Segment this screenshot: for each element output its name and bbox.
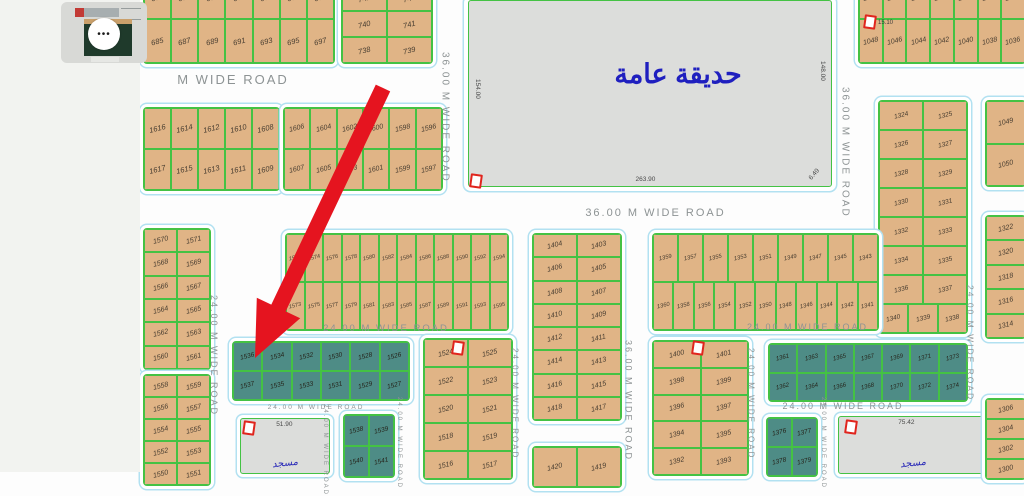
parcel-number: 1342 bbox=[840, 302, 854, 311]
parcel-1334[interactable]: 1334 bbox=[879, 246, 923, 275]
parcel-number: 1572 bbox=[289, 254, 302, 263]
parcel-number: 1041 bbox=[934, 0, 951, 2]
parcel-row: 15641565 bbox=[144, 299, 210, 322]
parcel-1394[interactable]: 1394 bbox=[653, 421, 701, 448]
parcel-1360[interactable]: 1360 bbox=[653, 282, 673, 330]
parcel-685[interactable]: 685 bbox=[144, 19, 171, 63]
parcel-number: 1593 bbox=[474, 302, 487, 311]
parcel-number: 1409 bbox=[591, 310, 608, 321]
parcel-1401[interactable]: 1401 bbox=[701, 341, 749, 368]
parcel-number: 1551 bbox=[185, 469, 202, 480]
parcel-696[interactable]: 696 bbox=[307, 0, 334, 19]
parcel-number: 1392 bbox=[668, 456, 685, 467]
parcel-1361[interactable]: 1361 bbox=[769, 344, 797, 373]
map-canvas[interactable]: حديقة عامة 154.00 148.00 263.90 6.49 51.… bbox=[0, 0, 1024, 472]
parcel-number: 1377 bbox=[797, 427, 813, 437]
parcel-number: 1354 bbox=[718, 302, 732, 311]
parcel-1393[interactable]: 1393 bbox=[701, 448, 749, 475]
parcel-1411[interactable]: 1411 bbox=[577, 327, 621, 350]
parcel-number: 1587 bbox=[418, 302, 431, 311]
parcel-1550[interactable]: 1550 bbox=[144, 463, 177, 485]
parcel-1316[interactable]: 1316 bbox=[986, 289, 1024, 313]
parcel-1566[interactable]: 1566 bbox=[144, 276, 177, 299]
parcel-1537[interactable]: 1537 bbox=[233, 371, 262, 400]
parcel-1044[interactable]: 1044 bbox=[906, 19, 930, 63]
parcel-number: 1322 bbox=[997, 223, 1014, 234]
parcel-1410[interactable]: 1410 bbox=[533, 304, 577, 327]
parcel-1571[interactable]: 1571 bbox=[177, 229, 210, 252]
parcel-1040[interactable]: 1040 bbox=[954, 19, 978, 63]
parcel-687[interactable]: 687 bbox=[171, 19, 198, 63]
parcel-1359[interactable]: 1359 bbox=[653, 234, 678, 282]
parcel-1552[interactable]: 1552 bbox=[144, 441, 177, 463]
parcel-number: 1614 bbox=[175, 122, 193, 135]
parcel-1615[interactable]: 1615 bbox=[171, 149, 198, 190]
parcel-number: 1348 bbox=[779, 302, 793, 311]
parcel-695[interactable]: 695 bbox=[280, 19, 307, 63]
parcel-1340[interactable]: 1340 bbox=[879, 304, 908, 333]
parcel-number: 1556 bbox=[152, 403, 169, 414]
red-marker-4 bbox=[242, 420, 256, 436]
parcel-row: 13941395 bbox=[653, 421, 748, 448]
more-options-button[interactable]: ••• bbox=[88, 18, 120, 50]
parcel-689[interactable]: 689 bbox=[198, 19, 225, 63]
parcel-1616[interactable]: 1616 bbox=[144, 108, 171, 149]
parcel-number: 1372 bbox=[917, 382, 931, 391]
parcel-1347[interactable]: 1347 bbox=[803, 234, 828, 282]
parcel-row: 1314 bbox=[986, 314, 1024, 338]
parcel-1553[interactable]: 1553 bbox=[177, 441, 210, 463]
parcel-1339[interactable]: 1339 bbox=[908, 304, 937, 333]
parcel-number: 1048 bbox=[862, 36, 879, 47]
parcel-1377[interactable]: 1377 bbox=[792, 418, 817, 447]
parcel-1405[interactable]: 1405 bbox=[577, 257, 621, 280]
parcel-1304[interactable]: 1304 bbox=[986, 419, 1024, 439]
parcel-1518[interactable]: 1518 bbox=[424, 423, 468, 451]
parcel-number: 696 bbox=[313, 0, 327, 3]
parcel-number: 1586 bbox=[418, 254, 431, 263]
parcel-1529[interactable]: 1529 bbox=[350, 371, 379, 400]
parcel-1396[interactable]: 1396 bbox=[653, 395, 701, 422]
road-label-12: 36.00 M WIDE ROAD bbox=[622, 330, 635, 472]
parcel-number: 1035 bbox=[1005, 0, 1022, 2]
parcel-1338[interactable]: 1338 bbox=[938, 304, 967, 333]
parcel-1594[interactable]: 1594 bbox=[490, 234, 509, 282]
parcel-1613[interactable]: 1613 bbox=[198, 149, 225, 190]
parcel-1517[interactable]: 1517 bbox=[468, 451, 512, 479]
parcel-1570[interactable]: 1570 bbox=[144, 229, 177, 252]
parcel-1337[interactable]: 1337 bbox=[923, 275, 967, 304]
parcel-number: 1574 bbox=[307, 254, 320, 263]
parcel-1520[interactable]: 1520 bbox=[424, 395, 468, 423]
parcel-1408[interactable]: 1408 bbox=[533, 281, 577, 304]
parcel-1562[interactable]: 1562 bbox=[144, 322, 177, 345]
parcel-1326[interactable]: 1326 bbox=[879, 130, 923, 159]
parcel-1371[interactable]: 1371 bbox=[910, 344, 938, 373]
parcel-1530[interactable]: 1530 bbox=[321, 342, 350, 371]
parcel-1592[interactable]: 1592 bbox=[471, 234, 490, 282]
parcel-1608[interactable]: 1608 bbox=[252, 108, 279, 149]
parcel-1320[interactable]: 1320 bbox=[986, 240, 1024, 264]
parcel-1372[interactable]: 1372 bbox=[910, 373, 938, 402]
parcel-1370[interactable]: 1370 bbox=[882, 373, 910, 402]
parcel-1523[interactable]: 1523 bbox=[468, 367, 512, 395]
parcel-number: 1379 bbox=[797, 456, 813, 466]
parcel-1335[interactable]: 1335 bbox=[923, 246, 967, 275]
parcel-1540[interactable]: 1540 bbox=[344, 446, 369, 477]
parcel-1399[interactable]: 1399 bbox=[701, 368, 749, 395]
parcel-1395[interactable]: 1395 bbox=[701, 421, 749, 448]
parcel-row: 15561557 bbox=[144, 397, 210, 419]
parcel-number: 1334 bbox=[893, 255, 909, 265]
parcel-number: 1600 bbox=[368, 123, 385, 134]
parcel-1362[interactable]: 1362 bbox=[769, 373, 797, 402]
parcel-number: 1526 bbox=[386, 351, 402, 361]
parcel-number: 1362 bbox=[776, 382, 790, 391]
parcel-number: 1343 bbox=[859, 254, 873, 263]
parcel-number: 1329 bbox=[937, 168, 953, 178]
parcel-number: 1601 bbox=[368, 164, 385, 175]
parcel-number: 1531 bbox=[328, 380, 344, 390]
road-label-4: 24.00 M WIDE ROAD bbox=[207, 238, 221, 473]
parcel-1535[interactable]: 1535 bbox=[262, 371, 291, 400]
parcel-1353[interactable]: 1353 bbox=[728, 234, 753, 282]
parcel-1351[interactable]: 1351 bbox=[753, 234, 778, 282]
parcel-row: 13321333 bbox=[879, 217, 967, 246]
parcel-1584[interactable]: 1584 bbox=[397, 234, 416, 282]
public-park-parcel[interactable]: حديقة عامة 154.00 148.00 263.90 6.49 bbox=[468, 0, 832, 187]
parcel-number: 1394 bbox=[668, 430, 685, 441]
parcel-1559[interactable]: 1559 bbox=[177, 375, 210, 397]
parcel-block-1538-1541: 1538153915401541 bbox=[343, 414, 395, 478]
parcel-1398[interactable]: 1398 bbox=[653, 368, 701, 395]
parcel-1541[interactable]: 1541 bbox=[369, 446, 394, 477]
parcel-1412[interactable]: 1412 bbox=[533, 327, 577, 350]
parcel-1609[interactable]: 1609 bbox=[252, 149, 279, 190]
parcel-1356[interactable]: 1356 bbox=[694, 282, 714, 330]
parcel-number: 1376 bbox=[772, 427, 788, 437]
parcel-number: 1373 bbox=[946, 354, 960, 363]
parcel-1617[interactable]: 1617 bbox=[144, 149, 171, 190]
parcel-1327[interactable]: 1327 bbox=[923, 130, 967, 159]
parcel-1050[interactable]: 1050 bbox=[986, 144, 1024, 187]
parcel-1329[interactable]: 1329 bbox=[923, 159, 967, 188]
parcel-1036[interactable]: 1036 bbox=[1001, 19, 1024, 63]
parcel-1567[interactable]: 1567 bbox=[177, 276, 210, 299]
parcel-number: 1393 bbox=[716, 456, 733, 467]
parcel-number: 693 bbox=[259, 35, 273, 47]
parcel-1556[interactable]: 1556 bbox=[144, 397, 177, 419]
parcel-number: 695 bbox=[286, 35, 300, 47]
parcel-1614[interactable]: 1614 bbox=[171, 108, 198, 149]
parcel-1403[interactable]: 1403 bbox=[577, 234, 621, 257]
parcel-1606[interactable]: 1606 bbox=[284, 108, 310, 149]
parcel-1573[interactable]: 1573 bbox=[286, 282, 305, 330]
parcel-1354[interactable]: 1354 bbox=[714, 282, 734, 330]
parcel-1407[interactable]: 1407 bbox=[577, 281, 621, 304]
parcel-block-1419-1420: 14201419 bbox=[532, 446, 622, 488]
parcel-block-1049-1050: 10491050 bbox=[985, 100, 1024, 187]
parcel-1324[interactable]: 1324 bbox=[879, 101, 923, 130]
parcel-number: 1408 bbox=[547, 287, 564, 298]
parcel-number: 1575 bbox=[307, 302, 320, 311]
parcel-row: 1362136413661368137013721374 bbox=[769, 373, 967, 402]
parcel-number: 1324 bbox=[893, 110, 909, 120]
parcel-1416[interactable]: 1416 bbox=[533, 374, 577, 397]
parcel-1557[interactable]: 1557 bbox=[177, 397, 210, 419]
parcel-1607[interactable]: 1607 bbox=[284, 149, 310, 190]
parcel-1409[interactable]: 1409 bbox=[577, 304, 621, 327]
parcel-1365[interactable]: 1365 bbox=[826, 344, 854, 373]
parcel-number: 1411 bbox=[591, 333, 607, 343]
parcel-1333[interactable]: 1333 bbox=[923, 217, 967, 246]
parcel-1555[interactable]: 1555 bbox=[177, 419, 210, 441]
parcel-1605[interactable]: 1605 bbox=[310, 149, 336, 190]
parcel-1392[interactable]: 1392 bbox=[653, 448, 701, 475]
parcel-row: 153715351533153115291527 bbox=[233, 371, 409, 400]
parcel-1414[interactable]: 1414 bbox=[533, 350, 577, 373]
parcel-1328[interactable]: 1328 bbox=[879, 159, 923, 188]
parcel-743[interactable]: 743 bbox=[387, 0, 432, 11]
parcel-block-1516-1525: 1524152515221523152015211518151915161517 bbox=[423, 338, 513, 480]
parcel-1599[interactable]: 1599 bbox=[389, 149, 415, 190]
parcel-number: 1410 bbox=[547, 310, 564, 321]
parcel-1578[interactable]: 1578 bbox=[342, 234, 361, 282]
parcel-number: 1043 bbox=[910, 0, 927, 2]
parcel-number: 1553 bbox=[185, 447, 202, 458]
parcel-1534[interactable]: 1534 bbox=[262, 342, 291, 371]
parcel-1612[interactable]: 1612 bbox=[198, 108, 225, 149]
parcel-1300[interactable]: 1300 bbox=[986, 459, 1024, 479]
parcel-1318[interactable]: 1318 bbox=[986, 265, 1024, 289]
parcel-number: 1562 bbox=[152, 329, 169, 340]
parcel-number: 1520 bbox=[438, 404, 455, 415]
parcel-1572[interactable]: 1572 bbox=[286, 234, 305, 282]
parcel-1415[interactable]: 1415 bbox=[577, 374, 621, 397]
parcel-row: 15701571 bbox=[144, 229, 210, 252]
parcel-row: 1318 bbox=[986, 265, 1024, 289]
parcel-1042[interactable]: 1042 bbox=[930, 19, 954, 63]
parcel-number: 1517 bbox=[482, 460, 499, 471]
parcel-1564[interactable]: 1564 bbox=[144, 299, 177, 322]
parcel-1330[interactable]: 1330 bbox=[879, 188, 923, 217]
parcel-1035[interactable]: 1035 bbox=[1001, 0, 1024, 19]
parcel-number: 1038 bbox=[981, 36, 998, 47]
parcel-1418[interactable]: 1418 bbox=[533, 397, 577, 420]
parcel-1322[interactable]: 1322 bbox=[986, 216, 1024, 240]
parcel-number: 691 bbox=[232, 35, 246, 47]
parcel-1526[interactable]: 1526 bbox=[380, 342, 409, 371]
parcel-697[interactable]: 697 bbox=[307, 19, 334, 63]
parcel-741[interactable]: 741 bbox=[387, 11, 432, 37]
parcel-1367[interactable]: 1367 bbox=[854, 344, 882, 373]
parcel-1306[interactable]: 1306 bbox=[986, 399, 1024, 419]
parcel-row: 1322 bbox=[986, 216, 1024, 240]
parcel-number: 1047 bbox=[862, 0, 879, 2]
minimap-thumbnail[interactable]: ••• bbox=[61, 2, 147, 63]
parcel-1336[interactable]: 1336 bbox=[879, 275, 923, 304]
parcel-1349[interactable]: 1349 bbox=[778, 234, 803, 282]
parcel-1601[interactable]: 1601 bbox=[363, 149, 389, 190]
parcel-1522[interactable]: 1522 bbox=[424, 367, 468, 395]
parcel-1045[interactable]: 1045 bbox=[883, 0, 907, 19]
parcel-1533[interactable]: 1533 bbox=[292, 371, 321, 400]
parcel-1560[interactable]: 1560 bbox=[144, 346, 177, 369]
parcel-1406[interactable]: 1406 bbox=[533, 257, 577, 280]
parcel-738[interactable]: 738 bbox=[342, 37, 387, 63]
parcel-number: 1333 bbox=[937, 226, 953, 236]
parcel-number: 1405 bbox=[591, 264, 608, 275]
red-marker-2 bbox=[451, 340, 465, 356]
parcel-number: 1370 bbox=[889, 382, 903, 391]
parcel-1037[interactable]: 1037 bbox=[978, 0, 1002, 19]
parcel-1604[interactable]: 1604 bbox=[310, 108, 336, 149]
parcel-row: 13341335 bbox=[879, 246, 967, 275]
parcel-1532[interactable]: 1532 bbox=[292, 342, 321, 371]
parcel-row: 14041403 bbox=[533, 234, 621, 257]
road-label-1: 36.00 M WIDE ROAD bbox=[438, 22, 452, 212]
parcel-1574[interactable]: 1574 bbox=[305, 234, 324, 282]
parcel-1588[interactable]: 1588 bbox=[434, 234, 453, 282]
parcel-1332[interactable]: 1332 bbox=[879, 217, 923, 246]
parcel-1538[interactable]: 1538 bbox=[344, 415, 369, 446]
parcel-693[interactable]: 693 bbox=[253, 19, 280, 63]
parcel-1580[interactable]: 1580 bbox=[360, 234, 379, 282]
parcel-1366[interactable]: 1366 bbox=[826, 373, 854, 402]
parcel-1331[interactable]: 1331 bbox=[923, 188, 967, 217]
parcel-1593[interactable]: 1593 bbox=[471, 282, 490, 330]
parcel-1536[interactable]: 1536 bbox=[233, 342, 262, 371]
parcel-1368[interactable]: 1368 bbox=[854, 373, 882, 402]
parcel-number: 1534 bbox=[269, 351, 285, 361]
parcel-740[interactable]: 740 bbox=[342, 11, 387, 37]
parcel-1586[interactable]: 1586 bbox=[416, 234, 435, 282]
parcel-1039[interactable]: 1039 bbox=[954, 0, 978, 19]
parcel-number: 1328 bbox=[893, 168, 909, 178]
parcel-1314[interactable]: 1314 bbox=[986, 314, 1024, 338]
parcel-1049[interactable]: 1049 bbox=[986, 101, 1024, 144]
parcel-1038[interactable]: 1038 bbox=[978, 19, 1002, 63]
parcel-1531[interactable]: 1531 bbox=[321, 371, 350, 400]
road-label-15: 24.00 M WIDE ROAD bbox=[818, 413, 828, 472]
parcel-739[interactable]: 739 bbox=[387, 37, 432, 63]
parcel-block-1403-1418: 1404140314061405140814071410140914121411… bbox=[532, 233, 622, 421]
parcel-1302[interactable]: 1302 bbox=[986, 439, 1024, 459]
parcel-1539[interactable]: 1539 bbox=[369, 415, 394, 446]
parcel-number: 1374 bbox=[946, 382, 960, 391]
parcel-row: 15181519 bbox=[424, 423, 512, 451]
parcel-row: 13361337 bbox=[879, 275, 967, 304]
parcel-number: 684 bbox=[150, 0, 164, 3]
parcel-686[interactable]: 686 bbox=[171, 0, 198, 19]
parcel-1419[interactable]: 1419 bbox=[577, 447, 621, 487]
parcel-number: 1371 bbox=[917, 354, 931, 363]
parcel-1343[interactable]: 1343 bbox=[853, 234, 878, 282]
parcel-1527[interactable]: 1527 bbox=[380, 371, 409, 400]
parcel-1397[interactable]: 1397 bbox=[701, 395, 749, 422]
parcel-692[interactable]: 692 bbox=[253, 0, 280, 19]
parcel-1528[interactable]: 1528 bbox=[350, 342, 379, 371]
parcel-number: 1350 bbox=[758, 302, 772, 311]
parcel-1521[interactable]: 1521 bbox=[468, 395, 512, 423]
parcel-1357[interactable]: 1357 bbox=[678, 234, 703, 282]
parcel-1043[interactable]: 1043 bbox=[906, 0, 930, 19]
parcel-number: 1598 bbox=[394, 123, 411, 134]
parcel-row: 14121411 bbox=[533, 327, 621, 350]
parcel-691[interactable]: 691 bbox=[225, 19, 252, 63]
parcel-684[interactable]: 684 bbox=[144, 0, 171, 19]
parcel-1373[interactable]: 1373 bbox=[939, 344, 967, 373]
parcel-number: 1567 bbox=[185, 282, 202, 293]
parcel-688[interactable]: 688 bbox=[198, 0, 225, 19]
parcel-1600[interactable]: 1600 bbox=[363, 108, 389, 149]
parcel-1563[interactable]: 1563 bbox=[177, 322, 210, 345]
park-dim-corner: 6.49 bbox=[808, 167, 821, 181]
parcel-row: 13981399 bbox=[653, 368, 748, 395]
parcel-1598[interactable]: 1598 bbox=[389, 108, 415, 149]
parcel-number: 1050 bbox=[997, 159, 1014, 170]
parcel-1363[interactable]: 1363 bbox=[797, 344, 825, 373]
parcel-1374[interactable]: 1374 bbox=[939, 373, 967, 402]
parcel-1565[interactable]: 1565 bbox=[177, 299, 210, 322]
parcel-number: 1609 bbox=[256, 163, 274, 176]
parcel-1558[interactable]: 1558 bbox=[144, 375, 177, 397]
parcel-1413[interactable]: 1413 bbox=[577, 350, 621, 373]
parcel-1568[interactable]: 1568 bbox=[144, 252, 177, 275]
parcel-1561[interactable]: 1561 bbox=[177, 346, 210, 369]
parcel-row: 15521553 bbox=[144, 441, 210, 463]
parcel-number: 1355 bbox=[709, 254, 723, 263]
parcel-1602[interactable]: 1602 bbox=[337, 108, 363, 149]
parcel-1576[interactable]: 1576 bbox=[323, 234, 342, 282]
parcel-1516[interactable]: 1516 bbox=[424, 451, 468, 479]
parcel-block-1526-1537: 1536153415321530152815261537153515331531… bbox=[232, 341, 410, 401]
parcel-1369[interactable]: 1369 bbox=[882, 344, 910, 373]
parcel-1376[interactable]: 1376 bbox=[767, 418, 792, 447]
parcel-1582[interactable]: 1582 bbox=[379, 234, 398, 282]
parcel-1525[interactable]: 1525 bbox=[468, 339, 512, 367]
parcel-1417[interactable]: 1417 bbox=[577, 397, 621, 420]
parcel-1404[interactable]: 1404 bbox=[533, 234, 577, 257]
parcel-1611[interactable]: 1611 bbox=[225, 149, 252, 190]
parcel-row: 15601561 bbox=[144, 346, 210, 369]
parcel-number: 1595 bbox=[492, 302, 505, 311]
parcel-row: 13261327 bbox=[879, 130, 967, 159]
parcel-1041[interactable]: 1041 bbox=[930, 0, 954, 19]
parcel-1595[interactable]: 1595 bbox=[490, 282, 509, 330]
parcel-742[interactable]: 742 bbox=[342, 0, 387, 11]
parcel-row: 14201419 bbox=[533, 447, 621, 487]
parcel-row: 16171615161316111609 bbox=[144, 149, 279, 190]
parcel-row: 1361136313651367136913711373 bbox=[769, 344, 967, 373]
parcel-1420[interactable]: 1420 bbox=[533, 447, 577, 487]
parcel-1554[interactable]: 1554 bbox=[144, 419, 177, 441]
parcel-row: 1047104510431041103910371035 bbox=[859, 0, 1024, 19]
parcel-694[interactable]: 694 bbox=[280, 0, 307, 19]
parcel-1551[interactable]: 1551 bbox=[177, 463, 210, 485]
parcel-number: 1603 bbox=[341, 164, 358, 175]
parcel-1590[interactable]: 1590 bbox=[453, 234, 472, 282]
parcel-1610[interactable]: 1610 bbox=[225, 108, 252, 149]
parcel-1519[interactable]: 1519 bbox=[468, 423, 512, 451]
parcel-1603[interactable]: 1603 bbox=[337, 149, 363, 190]
parcel-1355[interactable]: 1355 bbox=[703, 234, 728, 282]
parcel-1325[interactable]: 1325 bbox=[923, 101, 967, 130]
parcel-1358[interactable]: 1358 bbox=[673, 282, 693, 330]
parcel-row: 13921393 bbox=[653, 448, 748, 475]
parcel-690[interactable]: 690 bbox=[225, 0, 252, 19]
parcel-1569[interactable]: 1569 bbox=[177, 252, 210, 275]
